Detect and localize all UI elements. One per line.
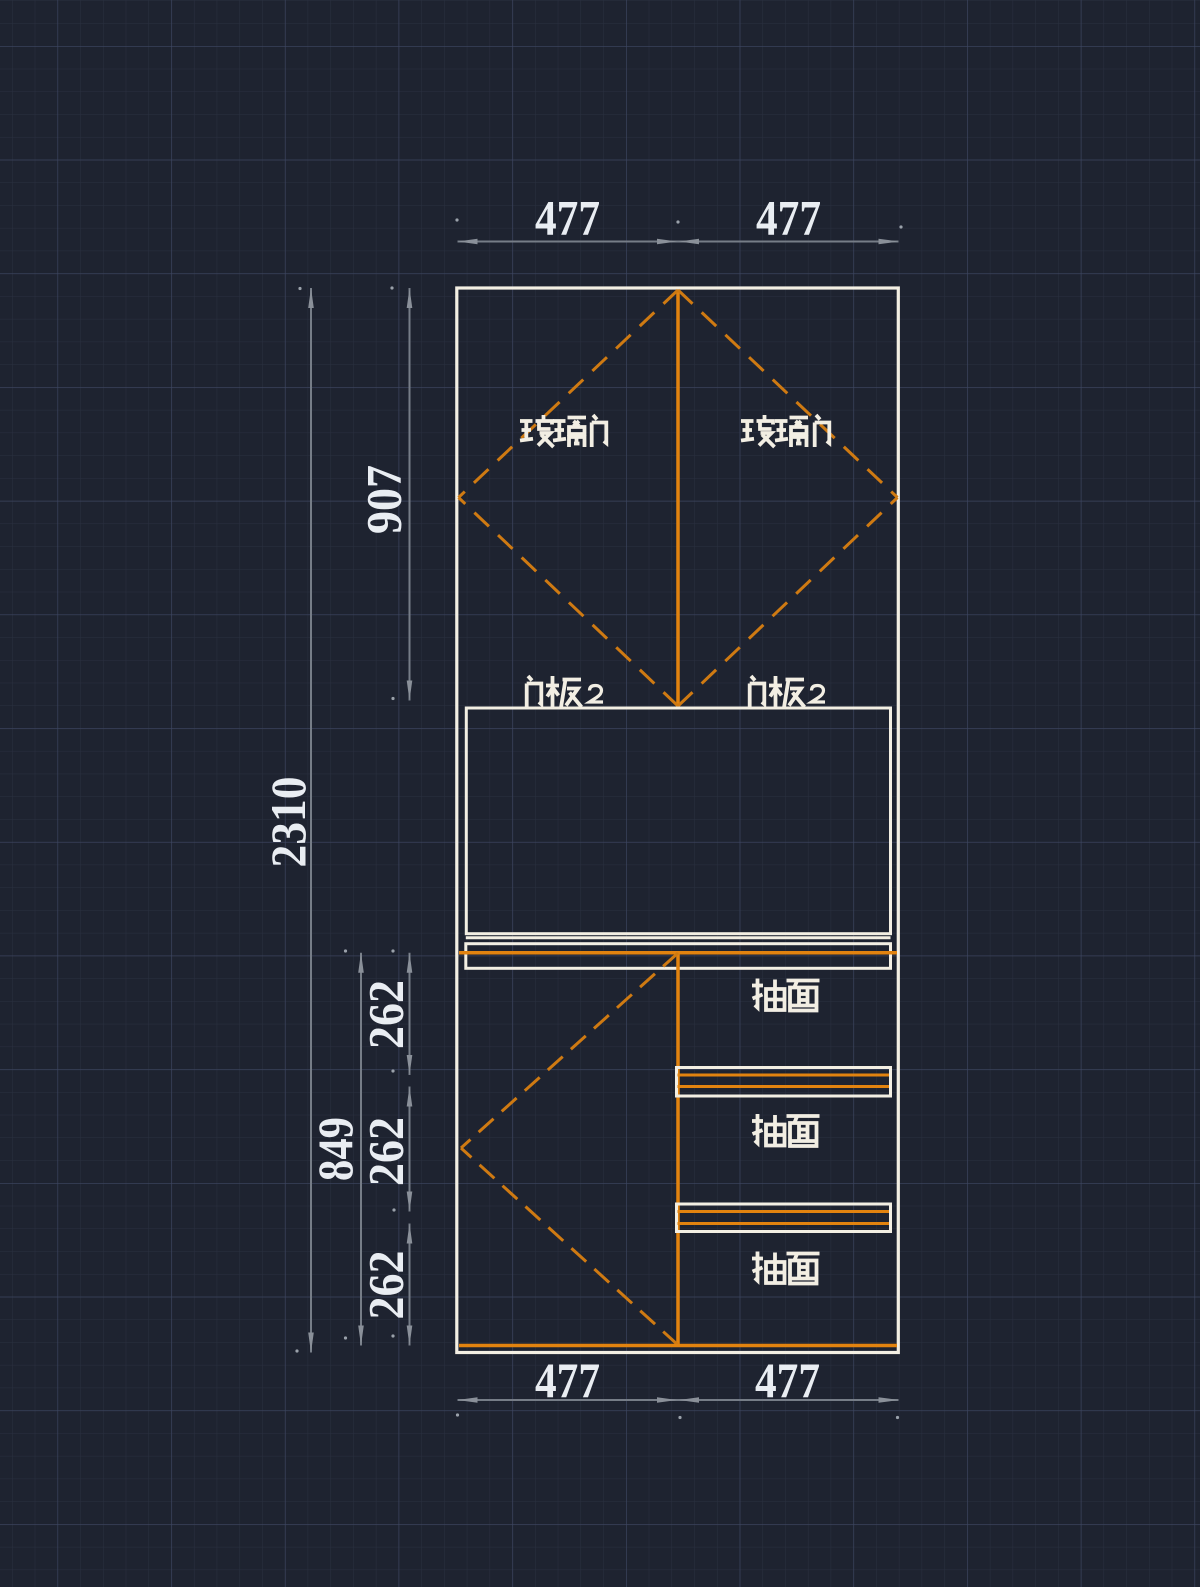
- svg-text:849: 849: [307, 1117, 363, 1181]
- svg-text:262: 262: [358, 1117, 414, 1186]
- svg-text:2310: 2310: [260, 777, 316, 868]
- svg-text:477: 477: [535, 190, 600, 246]
- svg-text:907: 907: [356, 465, 412, 534]
- svg-text:262: 262: [358, 1251, 414, 1320]
- svg-text:477: 477: [755, 1352, 820, 1408]
- svg-text:477: 477: [756, 190, 821, 246]
- svg-text:262: 262: [358, 980, 414, 1049]
- svg-text:477: 477: [535, 1352, 600, 1408]
